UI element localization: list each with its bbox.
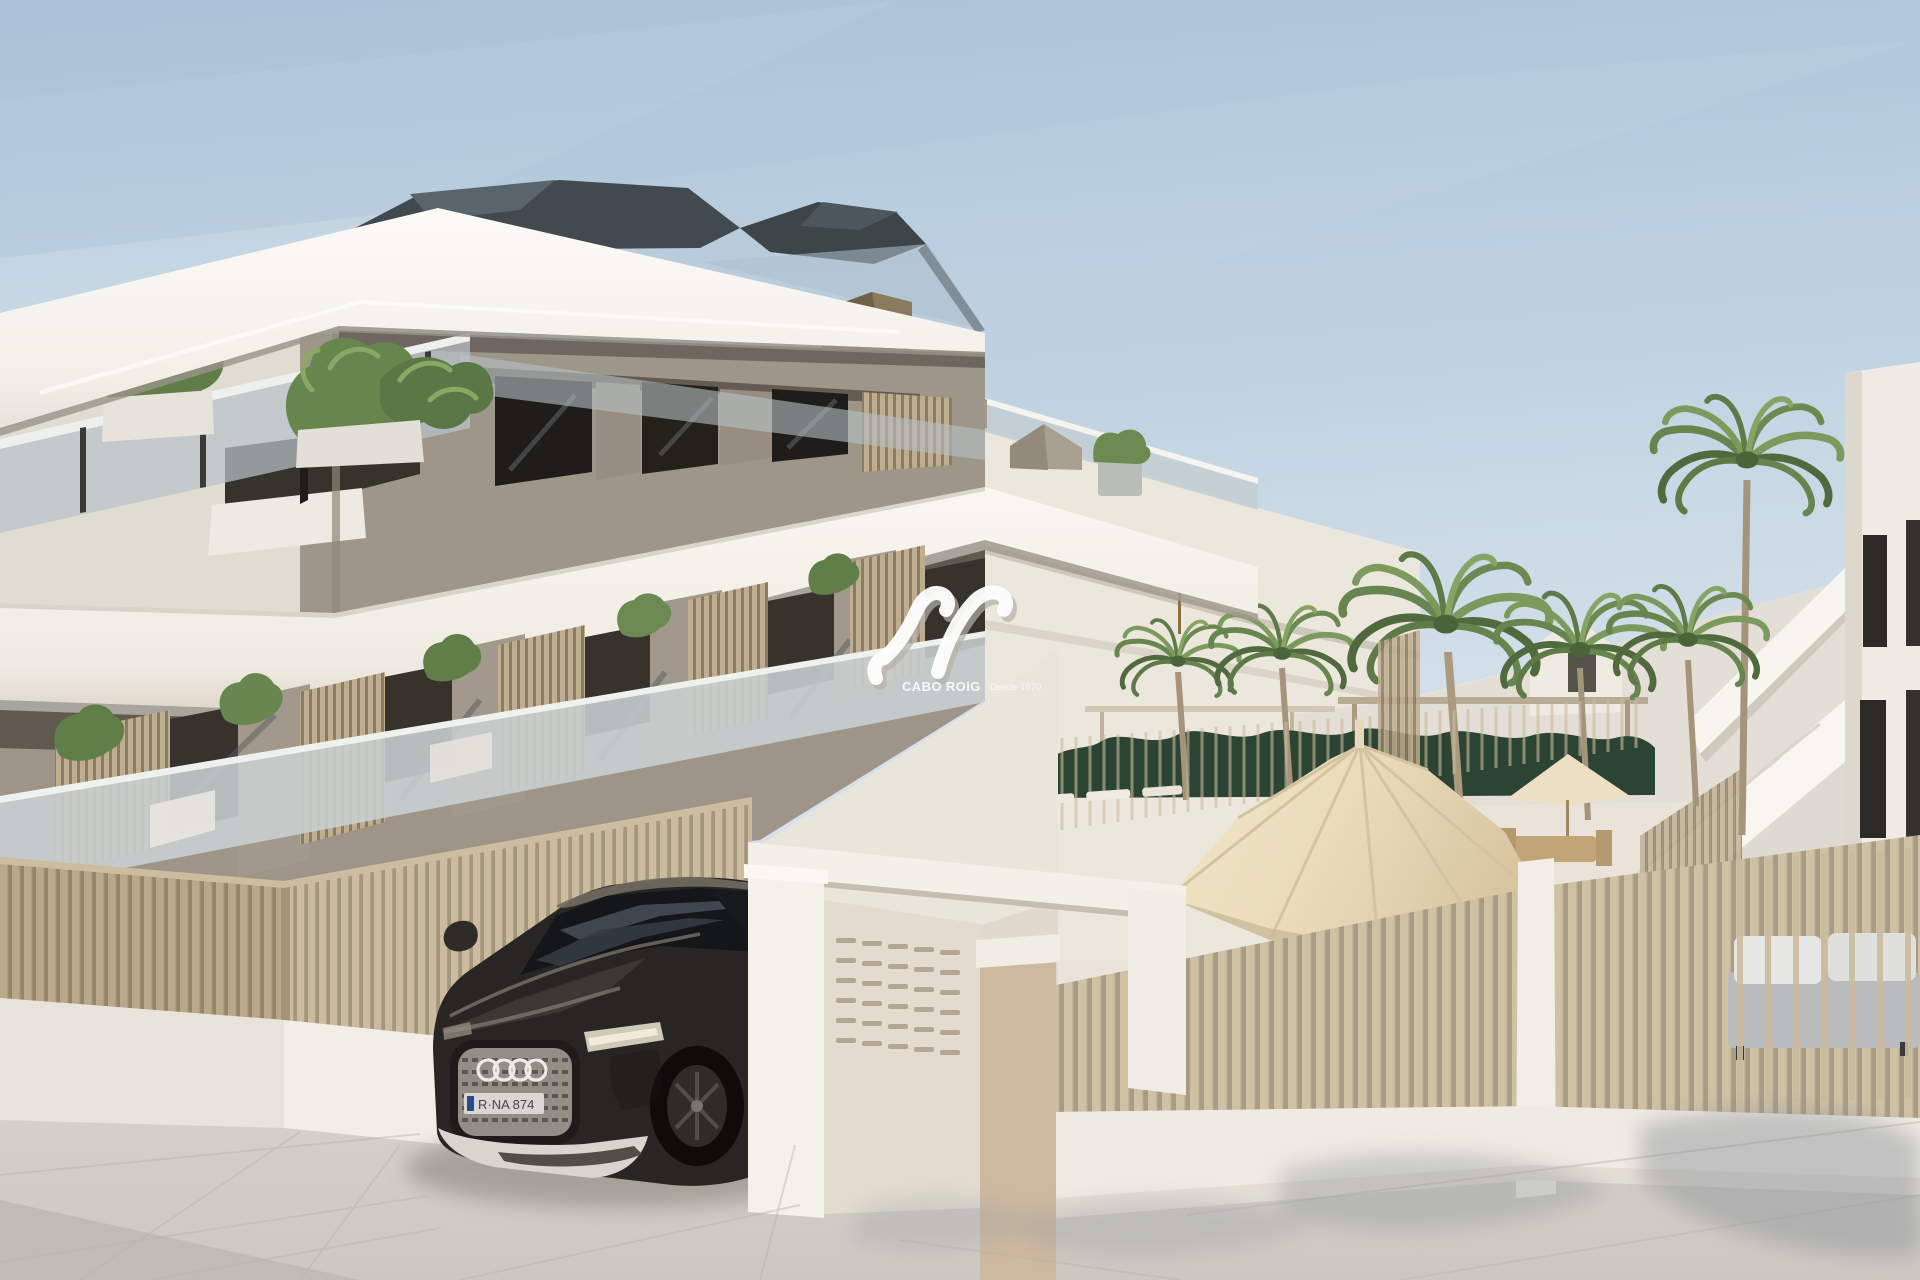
svg-text:CABO ROIG: CABO ROIG bbox=[902, 679, 981, 694]
svg-text:Desde 1970: Desde 1970 bbox=[990, 682, 1041, 693]
svg-text:R·NA 874: R·NA 874 bbox=[478, 1097, 534, 1112]
